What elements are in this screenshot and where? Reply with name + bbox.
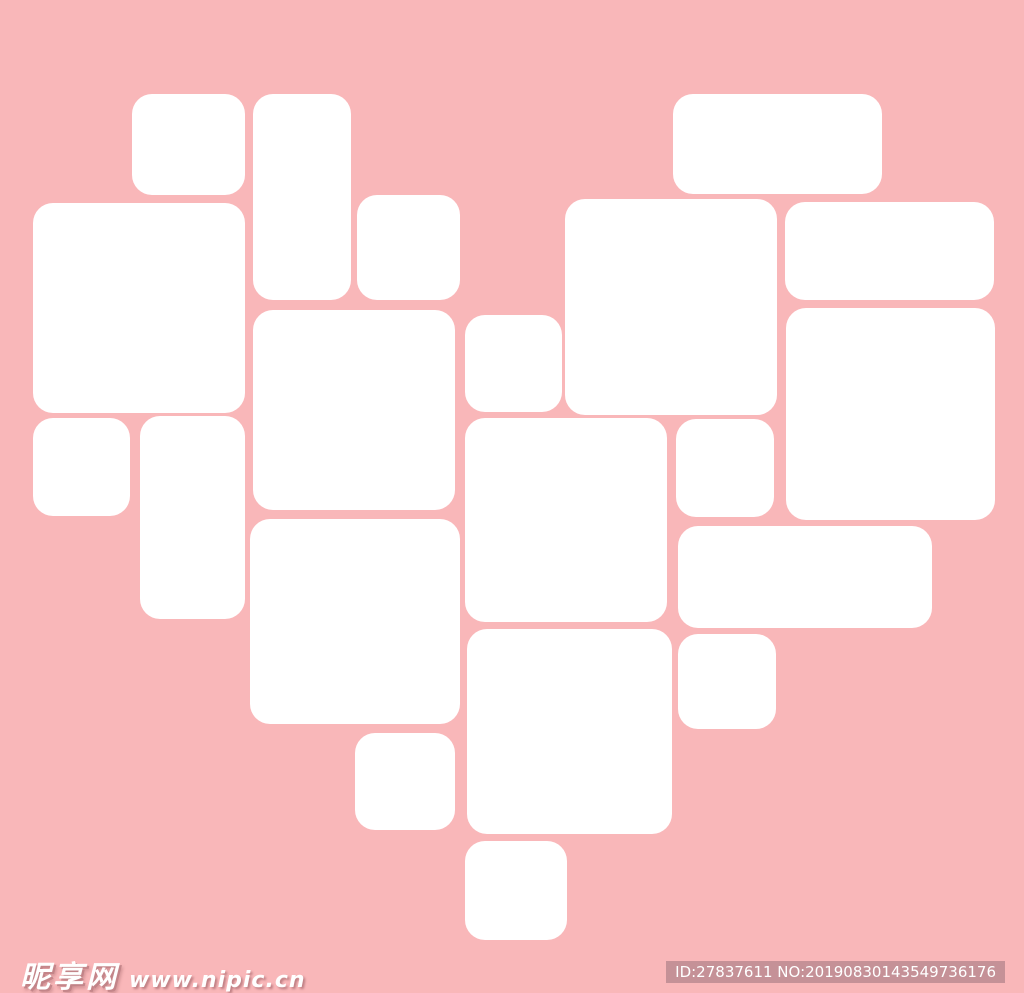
photo-tile-13 (465, 418, 667, 622)
image-id-badge: ID:27837611 NO:20190830143549736176 (666, 961, 1005, 983)
photo-tile-2 (253, 94, 351, 300)
photo-tile-15 (250, 519, 460, 724)
site-url-text: www.nipic.cn (129, 968, 306, 993)
photo-tile-12 (33, 418, 130, 516)
photo-tile-14 (676, 419, 774, 517)
photo-tile-5 (565, 199, 777, 415)
collage-canvas: 昵享网 www.nipic.cn ID:27837611 NO:20190830… (0, 0, 1024, 993)
heart-collage (0, 0, 1024, 993)
photo-tile-3 (673, 94, 882, 194)
photo-tile-8 (786, 308, 995, 520)
site-logo-text: 昵享网 (20, 952, 119, 993)
photo-tile-4 (357, 195, 460, 300)
photo-tile-19 (355, 733, 455, 830)
photo-tile-17 (467, 629, 672, 834)
photo-tile-9 (253, 310, 455, 510)
photo-tile-18 (678, 634, 776, 729)
photo-tile-1 (132, 94, 245, 195)
photo-tile-11 (140, 416, 245, 619)
photo-tile-10 (465, 315, 562, 412)
nipic-watermark: 昵享网 www.nipic.cn (20, 952, 306, 993)
photo-tile-20 (465, 841, 567, 940)
photo-tile-7 (33, 203, 245, 413)
photo-tile-6 (785, 202, 994, 300)
photo-tile-16 (678, 526, 932, 628)
